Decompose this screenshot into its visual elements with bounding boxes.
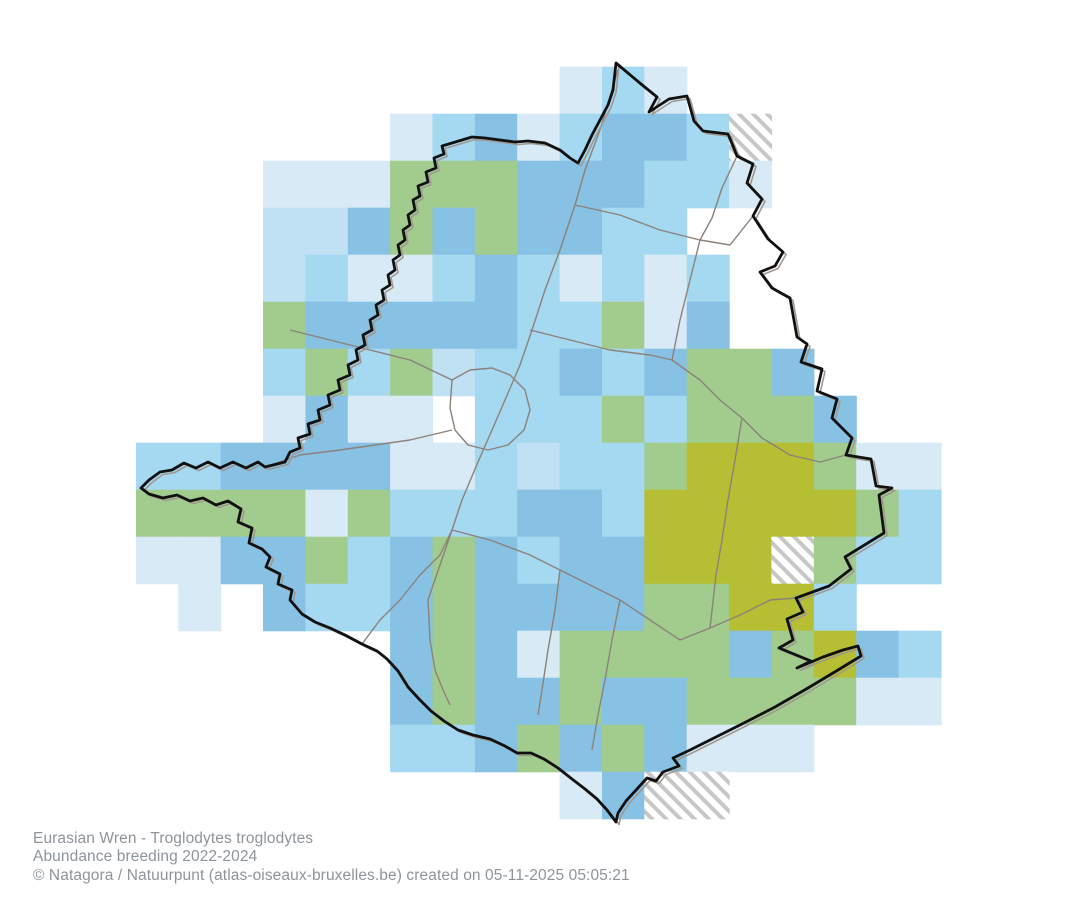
grid-cell	[729, 631, 772, 679]
grid-cell	[348, 443, 391, 491]
grid-cell	[560, 725, 603, 773]
grid-cell	[433, 631, 476, 679]
grid-cell	[771, 396, 814, 444]
grid-cell	[390, 208, 433, 256]
grid-cell	[517, 396, 560, 444]
map-caption: Eurasian Wren - Troglodytes troglodytes …	[33, 830, 630, 885]
grid-cell	[644, 537, 687, 585]
grid-cell	[475, 584, 518, 632]
grid-cell	[517, 678, 560, 726]
grid-cell	[348, 349, 391, 397]
grid-cell	[602, 443, 645, 491]
grid-cell	[899, 443, 942, 491]
grid-cell	[771, 537, 814, 585]
grid-cell	[517, 114, 560, 162]
grid-cell	[644, 490, 687, 538]
grid-cell	[433, 302, 476, 350]
grid-cell	[687, 772, 730, 820]
grid-cell	[644, 255, 687, 303]
grid-cell	[136, 537, 179, 585]
grid-cell	[348, 537, 391, 585]
grid-cell	[856, 678, 899, 726]
grid-cell	[771, 584, 814, 632]
grid-cell	[729, 584, 772, 632]
grid-cell	[602, 67, 645, 115]
grid-cell	[517, 631, 560, 679]
grid-cell	[390, 114, 433, 162]
grid-cell	[687, 537, 730, 585]
grid-cell	[305, 537, 348, 585]
grid-cell	[263, 349, 306, 397]
grid-cell	[644, 678, 687, 726]
grid-cell	[899, 537, 942, 585]
grid-cell	[729, 349, 772, 397]
grid-cell	[475, 631, 518, 679]
grid-cell	[899, 631, 942, 679]
grid-cell	[178, 584, 221, 632]
grid-cell	[305, 208, 348, 256]
grid-cell	[771, 349, 814, 397]
grid-cell	[602, 490, 645, 538]
grid-cell	[602, 725, 645, 773]
grid-cell	[602, 349, 645, 397]
grid-cell	[348, 302, 391, 350]
grid-cell	[433, 208, 476, 256]
grid-cell	[475, 161, 518, 209]
grid-cell	[560, 255, 603, 303]
grid-cell	[348, 208, 391, 256]
grid-cell	[517, 161, 560, 209]
grid-cell	[305, 161, 348, 209]
grid-cell	[687, 443, 730, 491]
grid-cell	[644, 443, 687, 491]
grid-cell	[221, 537, 264, 585]
grid-cell	[560, 678, 603, 726]
grid-cell	[305, 302, 348, 350]
grid-cell	[899, 678, 942, 726]
grid-cell	[560, 349, 603, 397]
grid-cell	[390, 161, 433, 209]
grid-cell	[390, 725, 433, 773]
grid-cell	[644, 114, 687, 162]
grid-cell	[178, 537, 221, 585]
grid-cell	[560, 490, 603, 538]
grid-cell	[348, 584, 391, 632]
grid-cell	[560, 396, 603, 444]
grid-cell	[729, 443, 772, 491]
grid-cell	[602, 255, 645, 303]
map-subject: Abundance breeding 2022-2024	[33, 848, 630, 866]
grid-cell	[560, 67, 603, 115]
grid-cell	[475, 208, 518, 256]
grid-cell	[687, 584, 730, 632]
grid-cell	[475, 255, 518, 303]
grid-cell	[475, 537, 518, 585]
grid-cell	[729, 490, 772, 538]
grid-cell	[517, 208, 560, 256]
grid-cell	[390, 349, 433, 397]
grid-cell	[433, 349, 476, 397]
grid-cell	[644, 725, 687, 773]
grid-cell	[602, 302, 645, 350]
grid-cell	[644, 396, 687, 444]
grid-cell	[517, 537, 560, 585]
grid-cell	[602, 161, 645, 209]
grid-cell	[178, 490, 221, 538]
grid-cell	[305, 584, 348, 632]
grid-cell	[263, 161, 306, 209]
grid-cell	[602, 678, 645, 726]
grid-cell	[305, 255, 348, 303]
grid-cell	[221, 490, 264, 538]
grid-cell	[433, 255, 476, 303]
grid-cell	[560, 772, 603, 820]
grid-cell	[136, 443, 179, 491]
grid-cell	[390, 302, 433, 350]
grid-cell	[263, 255, 306, 303]
grid-cell	[560, 443, 603, 491]
grid-cell	[687, 678, 730, 726]
grid-cell	[602, 208, 645, 256]
grid-cell	[560, 537, 603, 585]
grid-cell	[348, 490, 391, 538]
grid-cell	[687, 302, 730, 350]
grid-cell	[644, 302, 687, 350]
grid-cell	[729, 396, 772, 444]
abundance-map	[0, 0, 1074, 900]
grid-cell	[644, 631, 687, 679]
map-stage: Eurasian Wren - Troglodytes troglodytes …	[0, 0, 1074, 900]
grid-cell	[687, 631, 730, 679]
grid-cell	[475, 490, 518, 538]
grid-cell	[390, 584, 433, 632]
grid-cell	[475, 678, 518, 726]
grid-cell	[263, 302, 306, 350]
grid-cell	[687, 255, 730, 303]
grid-cell	[602, 114, 645, 162]
grid-cell	[390, 537, 433, 585]
grid-cell	[390, 678, 433, 726]
grid-cell	[263, 490, 306, 538]
grid-cell	[475, 349, 518, 397]
grid-cell	[517, 490, 560, 538]
grid-cell	[899, 490, 942, 538]
grid-cell	[560, 631, 603, 679]
grid-cell	[348, 161, 391, 209]
grid-cell	[814, 443, 857, 491]
grid-cell	[771, 443, 814, 491]
grid-cell	[517, 443, 560, 491]
grid-cell	[305, 490, 348, 538]
species-title: Eurasian Wren - Troglodytes troglodytes	[33, 830, 630, 848]
grid-cell	[602, 396, 645, 444]
grid-cell	[771, 725, 814, 773]
grid-cell	[390, 490, 433, 538]
grid-cell	[602, 631, 645, 679]
grid-cell	[814, 490, 857, 538]
grid-cell	[263, 208, 306, 256]
grid-cell	[517, 584, 560, 632]
grid-cell	[856, 490, 899, 538]
grid-cell	[602, 537, 645, 585]
grid-cell	[644, 584, 687, 632]
credit-line: © Natagora / Natuurpunt (atlas-oiseaux-b…	[33, 867, 630, 885]
grid-cell	[771, 490, 814, 538]
grid-cell	[644, 161, 687, 209]
grid-cell	[390, 443, 433, 491]
grid-cell	[517, 255, 560, 303]
grid-cell	[433, 725, 476, 773]
grid-cell	[433, 537, 476, 585]
grid-cell	[433, 584, 476, 632]
grid-cell	[475, 443, 518, 491]
grid-cell	[348, 396, 391, 444]
grid-cell	[263, 584, 306, 632]
grid-cell	[814, 584, 857, 632]
grid-cell	[856, 537, 899, 585]
grid-cell	[602, 584, 645, 632]
grid-cell	[475, 302, 518, 350]
grid-cell	[560, 584, 603, 632]
grid-cell	[729, 537, 772, 585]
grid-cell	[814, 537, 857, 585]
